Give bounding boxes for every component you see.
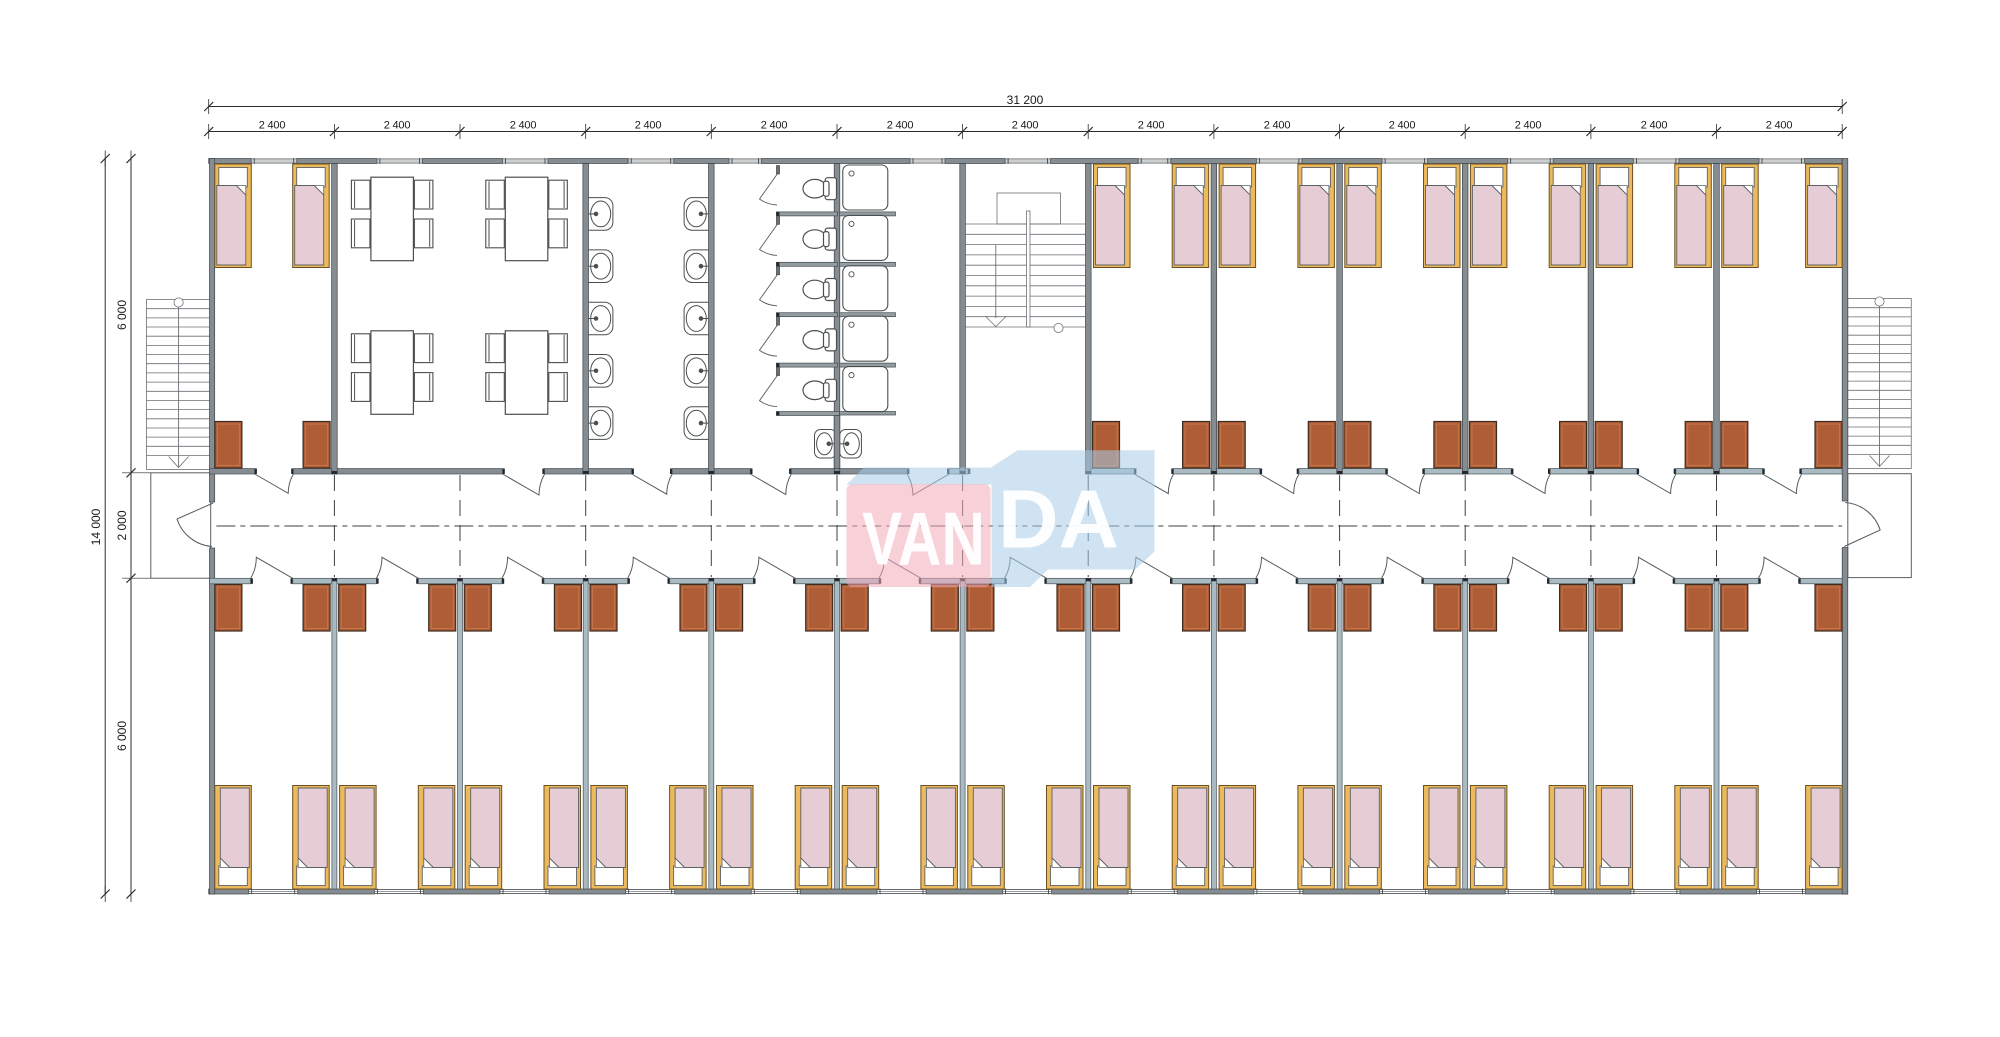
svg-text:6 000: 6 000: [115, 300, 129, 330]
svg-text:2 400: 2 400: [259, 120, 286, 132]
svg-text:2 000: 2 000: [115, 510, 129, 540]
svg-text:2 400: 2 400: [510, 120, 537, 132]
svg-text:14 000: 14 000: [89, 508, 103, 545]
svg-text:VAN: VAN: [862, 497, 985, 581]
svg-text:2 400: 2 400: [1264, 120, 1291, 132]
svg-text:31 200: 31 200: [1007, 93, 1044, 107]
svg-text:2 400: 2 400: [384, 120, 411, 132]
svg-text:2 400: 2 400: [761, 120, 788, 132]
svg-text:2 400: 2 400: [1766, 120, 1793, 132]
svg-text:DA: DA: [998, 473, 1119, 566]
svg-text:2 400: 2 400: [1138, 120, 1165, 132]
svg-text:6 000: 6 000: [115, 721, 129, 751]
svg-text:2 400: 2 400: [887, 120, 914, 132]
svg-text:2 400: 2 400: [1515, 120, 1542, 132]
svg-text:2 400: 2 400: [1641, 120, 1668, 132]
svg-text:2 400: 2 400: [1389, 120, 1416, 132]
svg-text:2 400: 2 400: [635, 120, 662, 132]
svg-text:2 400: 2 400: [1012, 120, 1039, 132]
